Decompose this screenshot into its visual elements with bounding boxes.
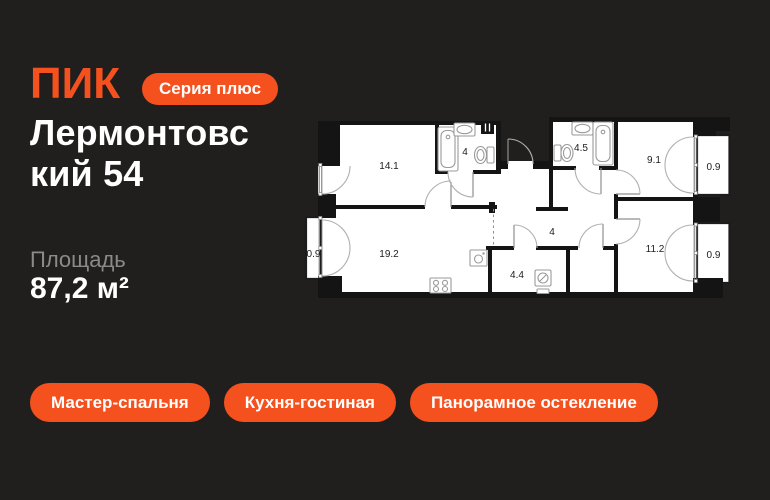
entry-door (508, 139, 533, 164)
tag-panoramic-glazing: Панорамное остекление (410, 383, 658, 422)
duct-shaft (481, 121, 494, 134)
pik-logo: ПИК (30, 62, 120, 106)
room-label-kitchen-living: 19.2 (379, 249, 399, 260)
toilet-large-bathroom (554, 145, 573, 162)
tag-kitchen-living: Кухня-гостиная (224, 383, 396, 422)
washing-machine (535, 270, 551, 294)
series-badge: Серия плюс (142, 73, 278, 105)
tag-master-bedroom: Мастер-спальня (30, 383, 210, 422)
sink-small-bathroom (454, 123, 475, 136)
floorplan: 14.1 4 4.5 9.1 0.9 4 0.9 19.2 4.4 11.2 0… (293, 106, 745, 312)
room-label-bedroom-3: 11.2 (646, 244, 665, 255)
room-label-bathroom-large: 4.5 (574, 143, 588, 154)
room-label-balcony-tr: 0.9 (707, 162, 721, 173)
project-title-line1: Лермонтовс (30, 112, 249, 153)
project-title-line2: кий 54 (30, 153, 249, 194)
bathtub-large-bathroom (593, 122, 613, 165)
banner: ПИК Серия плюс Лермонтовс кий 54 Площадь… (0, 0, 770, 500)
room-label-hallway: 4 (549, 227, 555, 238)
feature-tags: Мастер-спальня Кухня-гостиная Панорамное… (30, 383, 658, 422)
area-label: Площадь (30, 247, 126, 273)
room-label-bathroom-small: 4 (462, 147, 468, 158)
project-title: Лермонтовс кий 54 (30, 112, 249, 194)
room-label-bedroom-2: 9.1 (647, 155, 661, 166)
room-label-balcony-left: 0.9 (307, 249, 321, 260)
room-label-bedroom: 14.1 (379, 161, 399, 172)
kitchen-sink (470, 250, 487, 266)
toilet-small-bathroom (475, 147, 495, 164)
room-label-balcony-br: 0.9 (707, 250, 721, 261)
room-label-storage: 4.4 (510, 270, 524, 281)
area-value: 87,2 м² (30, 272, 129, 306)
stove (430, 278, 451, 293)
sink-large-bathroom (572, 122, 593, 135)
